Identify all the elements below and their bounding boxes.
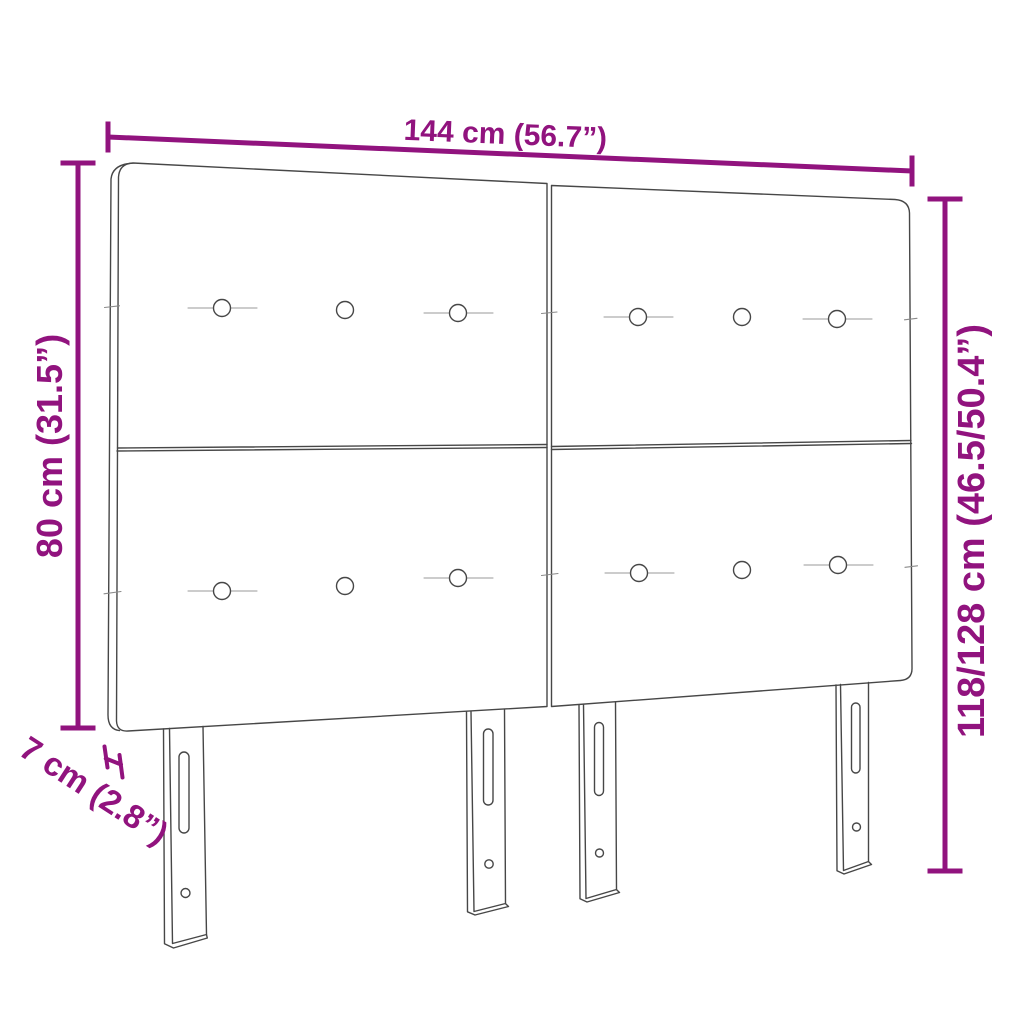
depth-dimension-bracket: [105, 747, 123, 778]
leg-hole: [853, 823, 861, 831]
leg-hole: [485, 860, 493, 868]
button: [337, 578, 354, 595]
headboard-left-side-edge: [108, 163, 132, 730]
button: [214, 583, 231, 600]
button: [734, 562, 751, 579]
dimension-labels: 144 cm (56.7”) 80 cm (31.5”) 118/128 cm …: [13, 114, 993, 852]
headboard-left-horizontal-seam: [117, 445, 547, 452]
button: [630, 309, 647, 326]
headboard: [104, 163, 918, 948]
leg-3: [579, 702, 620, 902]
button: [734, 309, 751, 326]
panel-height-dimension-label: 80 cm (31.5”): [29, 334, 70, 558]
dimension-lines: [61, 122, 963, 872]
leg-slot: [595, 723, 604, 796]
depth-dimension-label: 7 cm (2.8”): [13, 729, 175, 852]
total-height-dimension-label: 118/128 cm (46.5/50.4”): [951, 324, 993, 738]
leg-slot: [484, 729, 494, 805]
leg-hole: [181, 889, 190, 898]
button: [337, 302, 354, 319]
button: [450, 570, 467, 587]
leg-4: [836, 683, 872, 875]
leg-slot: [852, 703, 861, 773]
leg-hole: [596, 849, 604, 857]
headboard-right-horizontal-seam: [552, 441, 912, 450]
button: [829, 311, 846, 328]
headboard-dimension-diagram: 144 cm (56.7”) 80 cm (31.5”) 118/128 cm …: [0, 0, 1024, 1024]
button: [214, 300, 231, 317]
leg-2: [467, 710, 509, 916]
leg-1: [164, 727, 208, 949]
button: [450, 305, 467, 322]
button: [830, 557, 847, 574]
button: [631, 565, 648, 582]
leg-slot: [179, 752, 189, 833]
